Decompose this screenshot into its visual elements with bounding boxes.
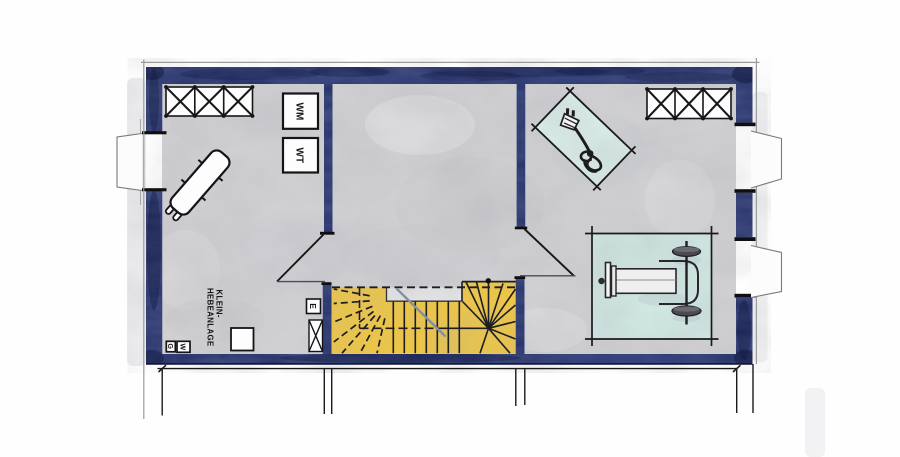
- svg-text:WM: WM: [294, 103, 305, 121]
- svg-text:HEBEANLAGE: HEBEANLAGE: [206, 288, 215, 347]
- svg-text:KLEIN-: KLEIN-: [215, 290, 224, 318]
- svg-text:WT: WT: [294, 148, 305, 164]
- svg-text:W: W: [179, 344, 186, 351]
- svg-text:G: G: [166, 344, 173, 350]
- svg-text:E: E: [308, 303, 318, 309]
